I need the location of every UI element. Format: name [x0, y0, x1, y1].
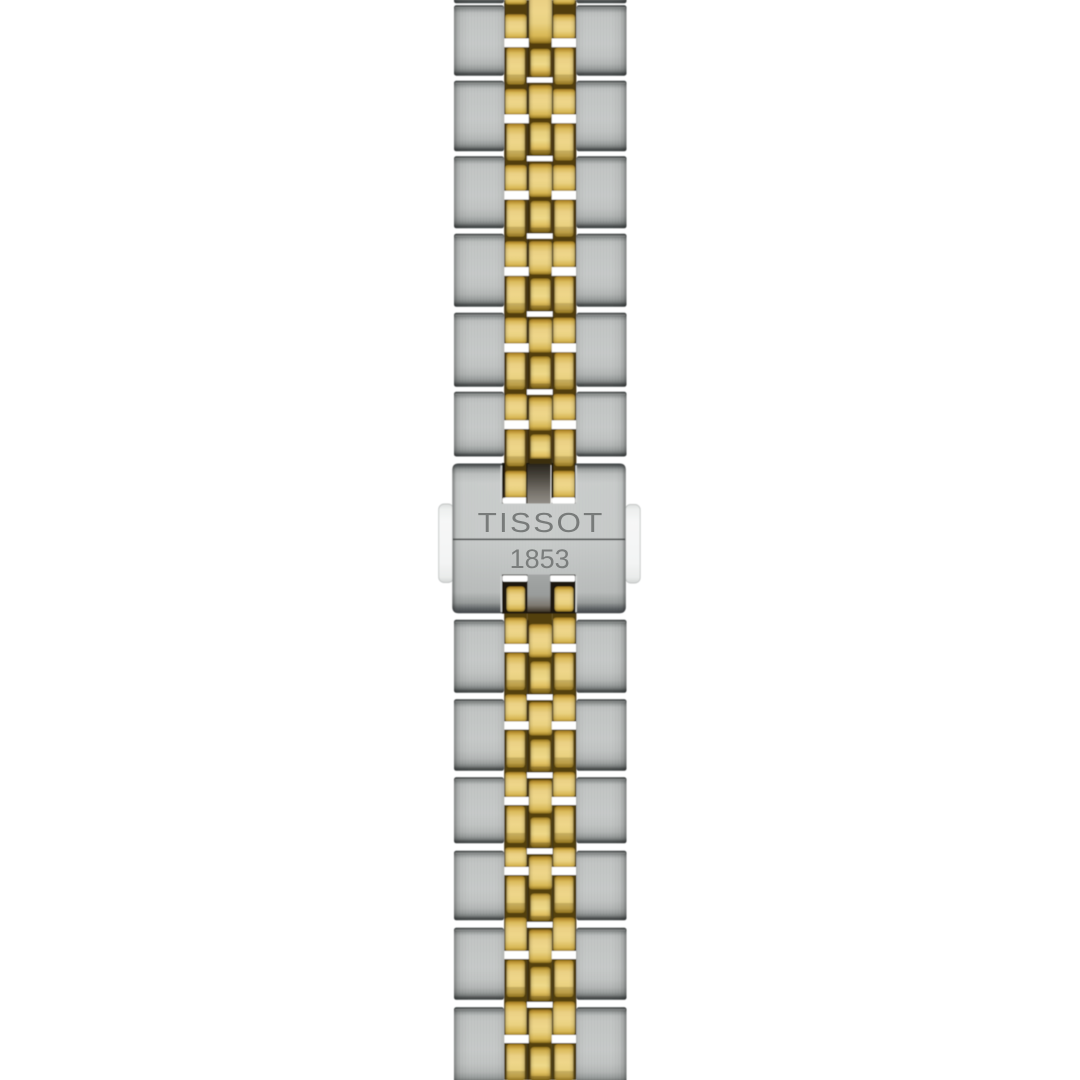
svg-text:1853: 1853	[510, 544, 570, 574]
svg-text:TISSOT: TISSOT	[478, 507, 605, 538]
